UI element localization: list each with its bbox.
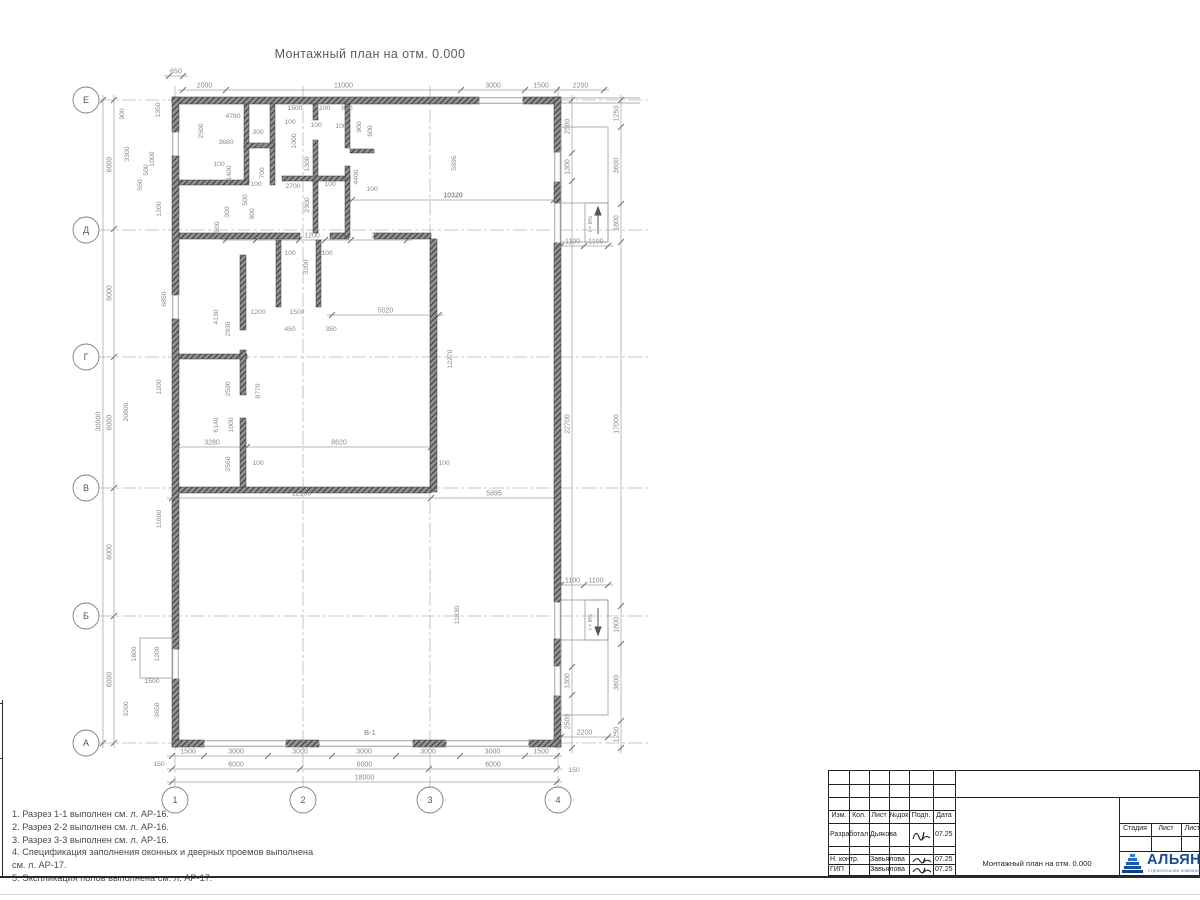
dim-label: 3200 — [123, 701, 130, 716]
dim-label: 100 — [252, 460, 264, 467]
tb-sheets: Листов — [1181, 825, 1200, 832]
tb-role-gip: ГИП — [830, 866, 844, 873]
tb-line — [1119, 823, 1200, 824]
tb-line — [829, 846, 955, 847]
dim-label: 5020 — [378, 308, 394, 315]
dim-label: 12270 — [447, 349, 454, 368]
tb-col-kol: Кол. — [849, 812, 869, 819]
dim-label: 1250 — [614, 727, 621, 743]
slope-label: i = 8% — [588, 614, 594, 630]
tb-col-list: Лист — [869, 812, 889, 819]
tb-line — [1119, 797, 1120, 877]
dim-label: 300 — [252, 129, 264, 136]
dim-label: 1100 — [316, 105, 331, 112]
dim-label: 1300 — [565, 673, 572, 689]
dim-label: 1200 — [250, 309, 265, 316]
dim-label: 4130 — [213, 309, 220, 324]
dim-label: 1000 — [291, 133, 298, 148]
axis-row-label: А — [83, 738, 89, 748]
dim-label: 1250 — [614, 106, 621, 122]
axis-col-label: 2 — [300, 795, 305, 805]
dim-label: 20800 — [123, 402, 130, 421]
dim-label: 3500 — [214, 221, 221, 236]
dim-label: 1300 — [565, 159, 572, 175]
dim-label: 150 — [153, 761, 165, 768]
dim-label: 100 — [310, 122, 322, 129]
drawing-title: Монтажный план на отм. 0.000 — [240, 47, 500, 61]
dim-label: 10320 — [444, 192, 463, 199]
dim-label: 6000 — [357, 762, 373, 769]
dim-label: 6000 — [485, 762, 501, 769]
dim-label: 100 — [284, 119, 296, 126]
axis-row-label: Д — [83, 225, 89, 235]
tb-document-name: Монтажный план на отм. 0.000 — [955, 859, 1119, 868]
axis-col-label: 4 — [555, 795, 560, 805]
dim-label: 30000 — [96, 412, 103, 432]
dim-label: 2590 — [225, 381, 232, 396]
dim-label: 4780 — [225, 113, 240, 120]
note-line: 1. Разрез 1-1 выполнен см. л. АР-16. — [12, 808, 313, 821]
dim-label: 3000 — [356, 749, 372, 756]
note-line: 5. Экспликация полов выполнена см. л. АР… — [12, 872, 313, 885]
dim-label: 3000 — [292, 749, 308, 756]
dim-label: 1800 — [614, 617, 621, 633]
axis-row-label: Б — [83, 611, 89, 621]
dim-label: 100 — [321, 250, 333, 257]
element-mark-label: В-1 — [364, 728, 376, 737]
tb-line — [829, 810, 955, 811]
logo-triangle-icon — [1121, 852, 1145, 874]
slope-label: i = 8% — [588, 216, 594, 232]
dim-label: 2200 — [573, 83, 589, 90]
dim-label: 1800 — [614, 215, 621, 231]
dim-label: 900 — [119, 108, 126, 120]
signature — [910, 863, 934, 877]
fold-mark — [0, 703, 3, 704]
signature — [910, 827, 934, 841]
dim-label: 3650 — [154, 702, 161, 717]
dim-label: 1200 — [156, 201, 163, 216]
note-line: 3. Разрез 3-3 выполнен см. л. АР-16. — [12, 834, 313, 847]
dim-label: 5895 — [486, 491, 502, 498]
dim-label: 1100 — [565, 578, 580, 585]
drawing-sheet: { "sheet": { "title": "Монтажный план на… — [0, 0, 1200, 900]
dim-label: 2000 — [197, 83, 213, 90]
tb-role-ncontrol: Н. контр. — [830, 856, 859, 863]
title-block: Изм. Кол. Лист №док Подп. Дата Разработа… — [828, 770, 1200, 876]
dim-label: 1000 — [149, 151, 156, 166]
dim-label: 6850 — [161, 291, 168, 306]
axis-row-label: Г — [84, 352, 89, 362]
dim-label: 1500 — [289, 309, 304, 316]
tb-line — [1119, 836, 1200, 837]
dim-label: 2200 — [577, 730, 593, 737]
tb-col-podp: Подп. — [909, 812, 933, 819]
dim-label: 1200 — [154, 646, 161, 661]
desk-edge-line — [0, 894, 1200, 895]
tb-sheet: Лист — [1151, 825, 1181, 832]
dim-label: 100 — [250, 181, 262, 188]
dim-label: 17000 — [614, 414, 621, 434]
dim-label: 100 — [324, 181, 336, 188]
note-line: см. л. АР-17. — [12, 859, 313, 872]
dim-label: 600 — [367, 125, 374, 137]
dim-label: 100 — [335, 123, 347, 130]
dim-label: 100 — [438, 460, 450, 467]
ramp-slope: i = 8%i = 8% — [588, 207, 601, 635]
dim-label: 1500 — [287, 105, 302, 112]
dim-label: 1200 — [156, 379, 163, 394]
dim-label: 900 — [249, 208, 256, 220]
axis-col-label: 1 — [172, 795, 177, 805]
dim-label: 1500 — [533, 83, 549, 90]
dim-label: 3200 — [303, 259, 310, 274]
tb-date-gip: 07.25 — [935, 866, 953, 873]
dim-label: 1500 — [180, 749, 196, 756]
dim-label: 2930 — [225, 321, 232, 336]
dim-label: 5895 — [451, 155, 458, 170]
dim-label: 3000 — [485, 83, 501, 90]
dim-label: 2700 — [285, 183, 300, 190]
dim-label: 1000 — [228, 417, 235, 432]
dim-label: 3680 — [218, 139, 233, 146]
dim-label: 1500 — [144, 678, 159, 685]
dim-label: 800 — [256, 142, 268, 149]
dim-label: 8770 — [255, 383, 262, 398]
dim-label: 100 — [284, 250, 296, 257]
dim-label: 1100 — [588, 578, 603, 585]
dim-label: 11600 — [156, 510, 163, 529]
dim-label: 11000 — [334, 83, 353, 90]
note-line: 2. Разрез 2-2 выполнен см. л. АР-16. — [12, 821, 313, 834]
dim-label: 300 — [224, 206, 231, 218]
dim-label: 100 — [213, 161, 225, 168]
dim-label: 6000 — [107, 544, 114, 560]
axis-row-label: В — [83, 483, 89, 493]
dim-label: 6000 — [107, 285, 114, 301]
tb-line — [829, 797, 1200, 798]
dim-label: 350 — [325, 326, 337, 333]
dim-label: 2500 — [198, 123, 205, 138]
tb-line — [829, 823, 955, 824]
dim-label: 500 — [242, 194, 249, 206]
dim-label: 18000 — [355, 775, 375, 782]
dim-label: 3600 — [614, 158, 621, 174]
dim-label: 1500 — [533, 749, 549, 756]
dim-label: 22700 — [565, 414, 572, 434]
company-tagline: строительная компания — [1148, 868, 1200, 873]
dim-label: 700 — [259, 167, 266, 179]
dim-label: 1350 — [155, 102, 162, 117]
dim-label: 650 — [170, 69, 182, 76]
dim-label: 3000 — [228, 749, 244, 756]
dim-label: 150 — [568, 767, 580, 774]
tb-name-ncontrol: Завьялова — [870, 856, 905, 863]
company-logo: АЛЬЯНС строительная компания — [1121, 851, 1200, 875]
dim-label: 6000 — [107, 672, 114, 688]
tb-stage: Стадия — [1119, 825, 1151, 832]
company-name: АЛЬЯНС — [1147, 852, 1200, 868]
dim-label: 2500 — [565, 714, 572, 730]
dim-label: 6000 — [107, 415, 114, 431]
tb-role-developer: Разработал — [830, 831, 868, 838]
dim-label: 2500 — [565, 119, 572, 135]
dim-label: 3000 — [485, 749, 501, 756]
tb-col-data: Дата — [933, 812, 955, 819]
dim-label: 6140 — [213, 417, 220, 432]
fold-mark — [0, 758, 3, 759]
dim-label: 1800 — [131, 646, 138, 661]
dim-label: 100 — [366, 186, 378, 193]
tb-name-gip: Завьялова — [870, 866, 905, 873]
dim-label: 11830 — [454, 606, 461, 625]
axis-bubbles: ЕДГВБА1234 — [73, 87, 571, 813]
axis-col-label: 3 — [427, 795, 432, 805]
sheet-frame-bottom — [0, 876, 1200, 878]
axis-row-label: Е — [83, 95, 89, 105]
dim-label: 6000 — [228, 762, 244, 769]
tb-date-developer: 07.25 — [935, 831, 953, 838]
tb-name-developer: Дьякова — [870, 831, 897, 838]
tb-col-ndoc: №док — [889, 812, 909, 819]
dim-label: 1300 — [304, 156, 311, 171]
dim-label: 900 — [356, 121, 363, 133]
tb-date-ncontrol: 07.25 — [935, 856, 953, 863]
dim-label: 550 — [137, 179, 144, 191]
dim-label: 450 — [284, 326, 296, 333]
tb-col-izm: Изм. — [829, 812, 849, 819]
dim-label: 3000 — [420, 749, 436, 756]
dim-label: 3280 — [204, 440, 220, 447]
note-line: 4. Спецификация заполнения оконных и две… — [12, 846, 313, 859]
dim-label: 3600 — [614, 675, 621, 691]
ramps — [140, 98, 640, 715]
dim-label: 2560 — [225, 456, 232, 471]
notes-list: 1. Разрез 1-1 выполнен см. л. АР-16.2. Р… — [12, 808, 313, 885]
dim-label: 1400 — [226, 165, 233, 180]
dim-label: 3300 — [124, 146, 131, 161]
floor-plan-svg: 6502000110003000150022001500300030003000… — [0, 0, 1200, 900]
tb-line — [829, 784, 955, 785]
dim-label: 1200 — [304, 233, 320, 240]
dim-label: 4400 — [353, 169, 360, 184]
dim-label: 8620 — [331, 440, 347, 447]
sheet-frame-left — [2, 700, 3, 876]
dim-label: 820 — [341, 105, 353, 112]
dim-label: 2300 — [304, 197, 311, 212]
dim-label: 6000 — [107, 157, 114, 173]
